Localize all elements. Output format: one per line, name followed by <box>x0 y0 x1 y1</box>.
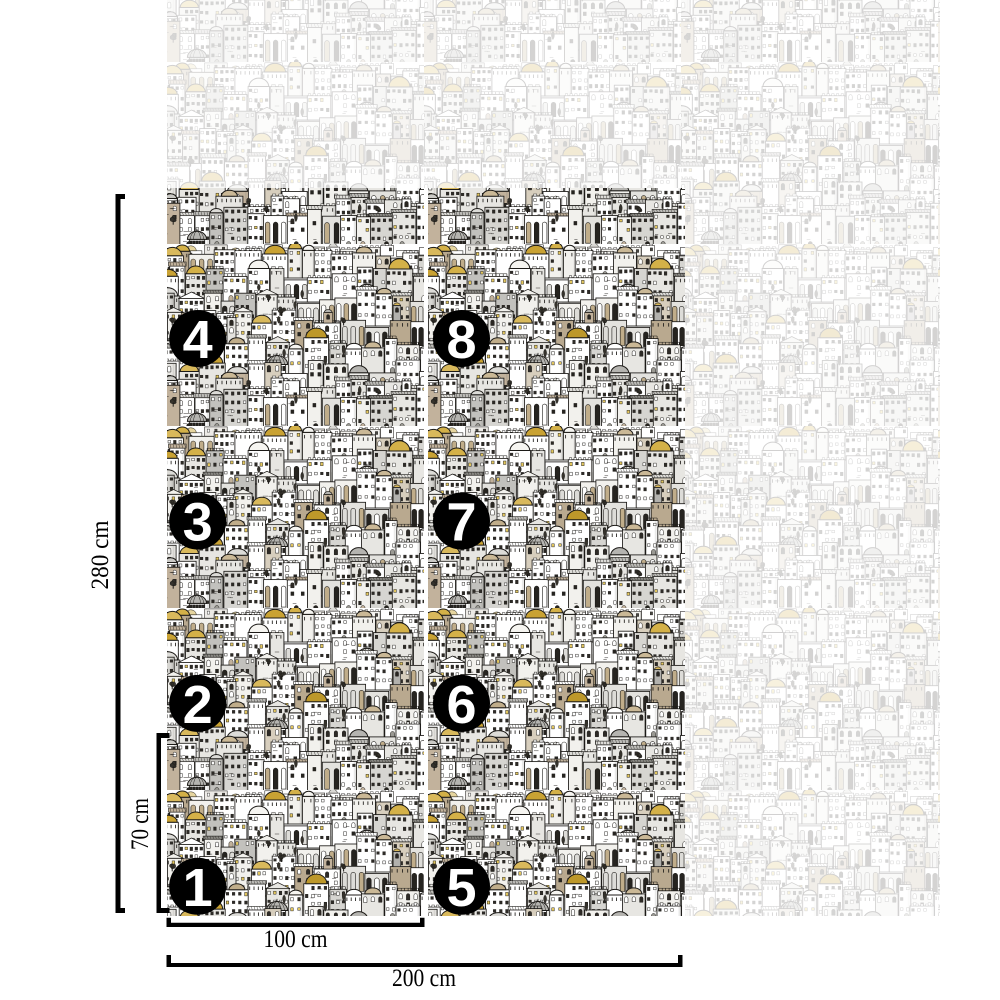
svg-text:280 cm: 280 cm <box>87 520 114 590</box>
svg-text:3: 3 <box>183 493 213 553</box>
svg-text:8: 8 <box>446 310 476 370</box>
svg-text:70 cm: 70 cm <box>127 798 154 850</box>
svg-text:1: 1 <box>183 858 213 918</box>
svg-text:2: 2 <box>183 675 213 735</box>
svg-text:4: 4 <box>183 310 213 370</box>
svg-text:6: 6 <box>446 675 476 735</box>
svg-text:7: 7 <box>446 493 476 553</box>
svg-text:5: 5 <box>446 858 476 918</box>
svg-text:100 cm: 100 cm <box>264 926 328 953</box>
svg-text:200 cm: 200 cm <box>392 965 456 992</box>
